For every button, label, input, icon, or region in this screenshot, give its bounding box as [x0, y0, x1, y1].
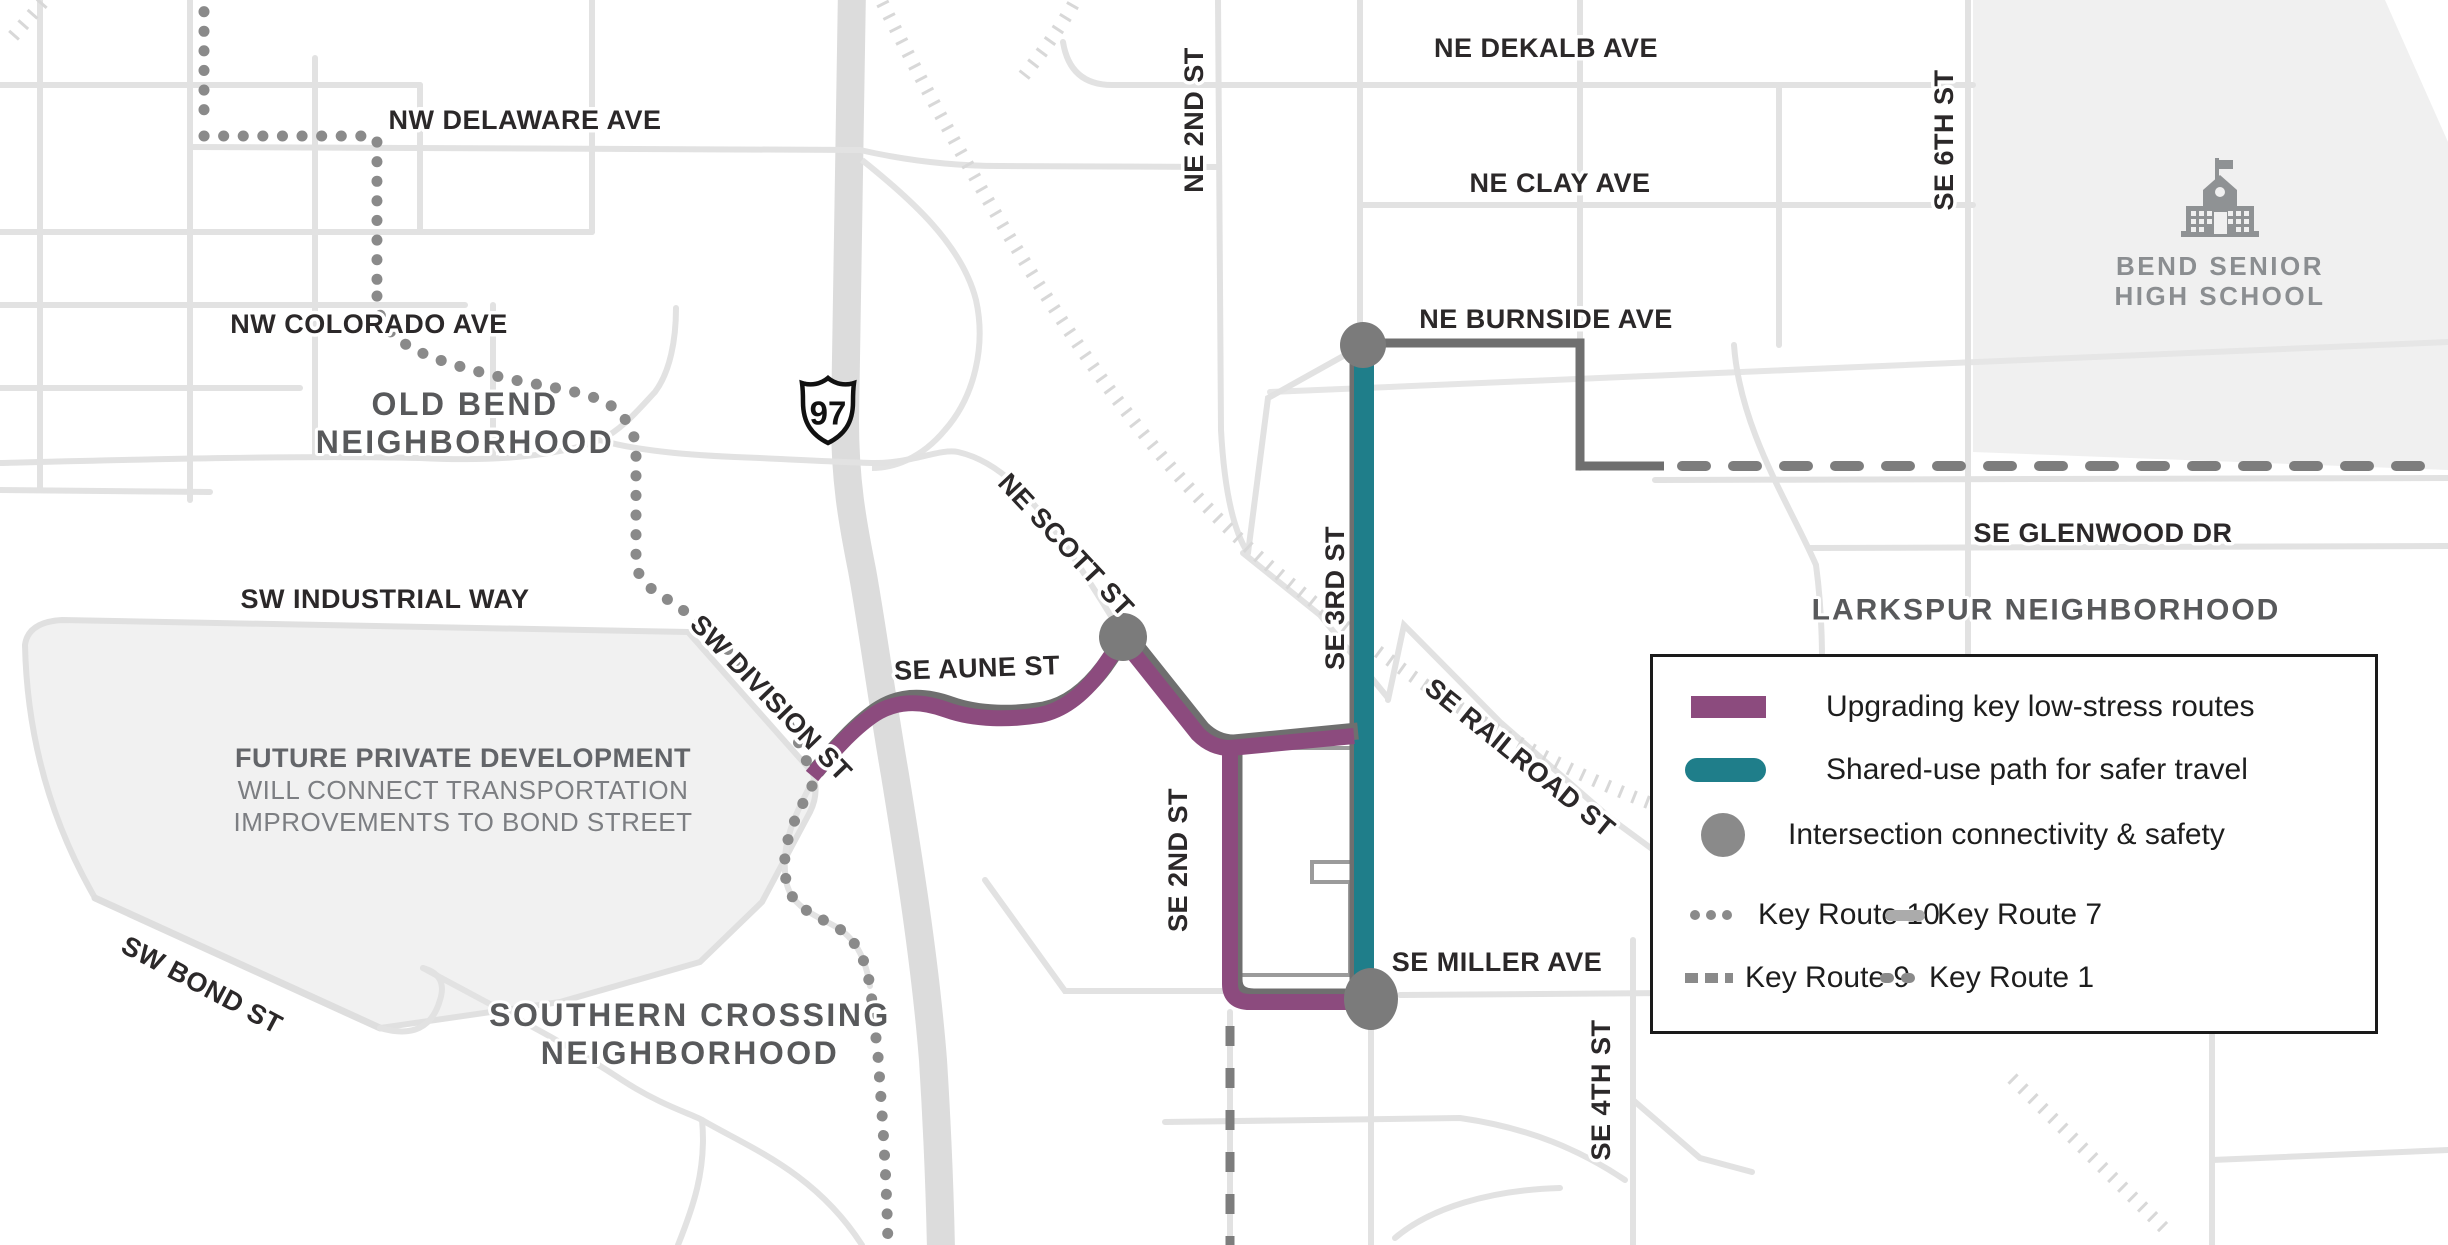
label-ne-dekalb-ave: NE DEKALB AVE	[1434, 33, 1658, 63]
label-ne-2nd-st: NE 2ND ST	[1179, 47, 1209, 193]
bend-transportation-map: 97 NW DELAWARE AVE NW COLORADO AVE SW IN…	[0, 0, 2448, 1245]
annotation-future-dev-line1: FUTURE PRIVATE DEVELOPMENT	[235, 743, 691, 773]
label-se-2nd-st: SE 2ND ST	[1163, 788, 1193, 932]
us97-shield-number: 97	[810, 395, 847, 432]
teal-path-swatch	[1685, 758, 1766, 782]
label-ne-burnside-ave: NE BURNSIDE AVE	[1419, 304, 1673, 334]
round-dash-swatch	[1880, 973, 1915, 983]
label-se-4th-st: SE 4TH ST	[1586, 1019, 1616, 1160]
purple-route-swatch	[1691, 696, 1766, 718]
legend-label: Key Route 1	[1929, 961, 2094, 995]
map-stage: 97 NW DELAWARE AVE NW COLORADO AVE SW IN…	[0, 0, 2448, 1245]
label-nw-colorado-ave: NW COLORADO AVE	[230, 309, 508, 339]
label-larkspur-neighborhood: LARKSPUR NEIGHBORHOOD	[1812, 594, 2281, 627]
label-old-bend-line2: NEIGHBORHOOD	[316, 424, 614, 460]
intersection-3rd-miller	[1344, 968, 1398, 1030]
annotation-future-dev-line2: WILL CONNECT TRANSPORTATION	[238, 775, 689, 805]
label-ne-clay-ave: NE CLAY AVE	[1469, 168, 1650, 198]
label-se-6th-st: SE 6TH ST	[1929, 69, 1959, 210]
label-se-glenwood-dr: SE GLENWOOD DR	[1973, 518, 2232, 548]
square-dash-swatch	[1685, 973, 1733, 983]
legend-row-low-stress: Upgrading key low-stress routes	[1691, 685, 2255, 729]
railroad-southeast	[2012, 1078, 2166, 1230]
route-ne-burnside	[1363, 343, 1664, 466]
label-se-railroad-st: SE RAILROAD ST	[1419, 672, 1621, 843]
highway-97-band	[845, 0, 980, 1245]
legend-row-key-route-1: Key Route 1	[1880, 956, 2094, 1000]
intersection-circle-swatch	[1701, 813, 1745, 857]
label-school-line2: HIGH SCHOOL	[2115, 281, 2326, 311]
label-old-bend-line1: OLD BEND	[371, 386, 558, 422]
solid-gray-swatch	[1885, 910, 1925, 921]
legend-label: Upgrading key low-stress routes	[1826, 690, 2255, 724]
intersection-3rd-burnside	[1340, 322, 1386, 368]
legend-row-intersection: Intersection connectivity & safety	[1701, 813, 2225, 857]
legend-label: Intersection connectivity & safety	[1788, 818, 2225, 852]
block-outline	[1240, 748, 1352, 975]
label-se-aune-st: SE AUNE ST	[894, 650, 1061, 686]
legend-label: Shared-use path for safer travel	[1826, 753, 2248, 787]
legend-label: Key Route 7	[1937, 898, 2102, 932]
dotted-line-swatch	[1690, 910, 1732, 920]
railroad-corner-stub	[8, 0, 52, 42]
label-southern-crossing-line2: NEIGHBORHOOD	[541, 1035, 839, 1071]
label-ne-scott-st: NE SCOTT ST	[992, 467, 1139, 622]
label-sw-industrial-way: SW INDUSTRIAL WAY	[240, 584, 529, 614]
route-se-2nd-miller	[1230, 744, 1355, 1002]
label-se-miller-ave: SE MILLER AVE	[1392, 947, 1603, 977]
label-school-line1: BEND SENIOR	[2116, 251, 2324, 281]
label-se-3rd-st: SE 3RD ST	[1320, 526, 1350, 670]
legend-row-key-route-9: Key Route 9	[1685, 956, 1910, 1000]
legend-row-shared-use: Shared-use path for safer travel	[1685, 748, 2248, 792]
label-nw-delaware-ave: NW DELAWARE AVE	[388, 105, 661, 135]
intersection-scott-aune	[1099, 613, 1147, 661]
highway-ramp	[862, 160, 980, 468]
annotation-future-dev-line3: IMPROVEMENTS TO BOND STREET	[234, 807, 693, 837]
label-southern-crossing-line1: SOUTHERN CROSSING	[489, 997, 891, 1033]
map-legend: Upgrading key low-stress routes Shared-u…	[1650, 654, 2378, 1034]
legend-row-key-route-7: Key Route 7	[1885, 893, 2102, 937]
